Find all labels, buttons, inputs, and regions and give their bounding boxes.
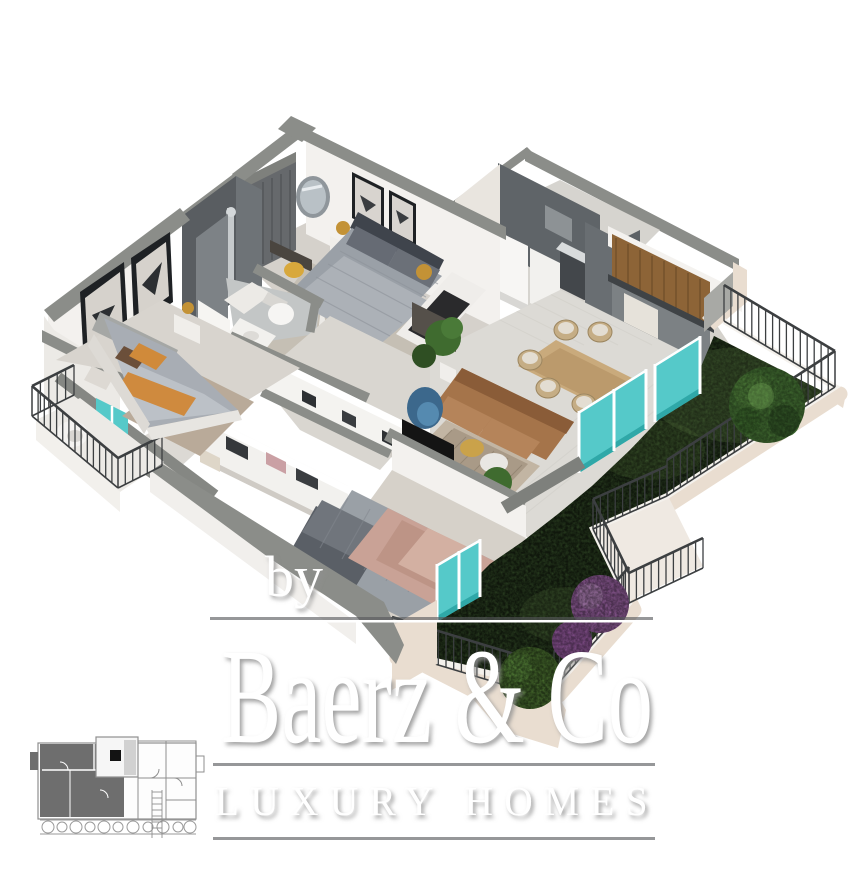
svg-text:Baerz & Co: Baerz & Co [221,622,653,772]
svg-text:LUXURY HOMES: LUXURY HOMES [215,778,659,824]
svg-text:by: by [265,544,323,609]
